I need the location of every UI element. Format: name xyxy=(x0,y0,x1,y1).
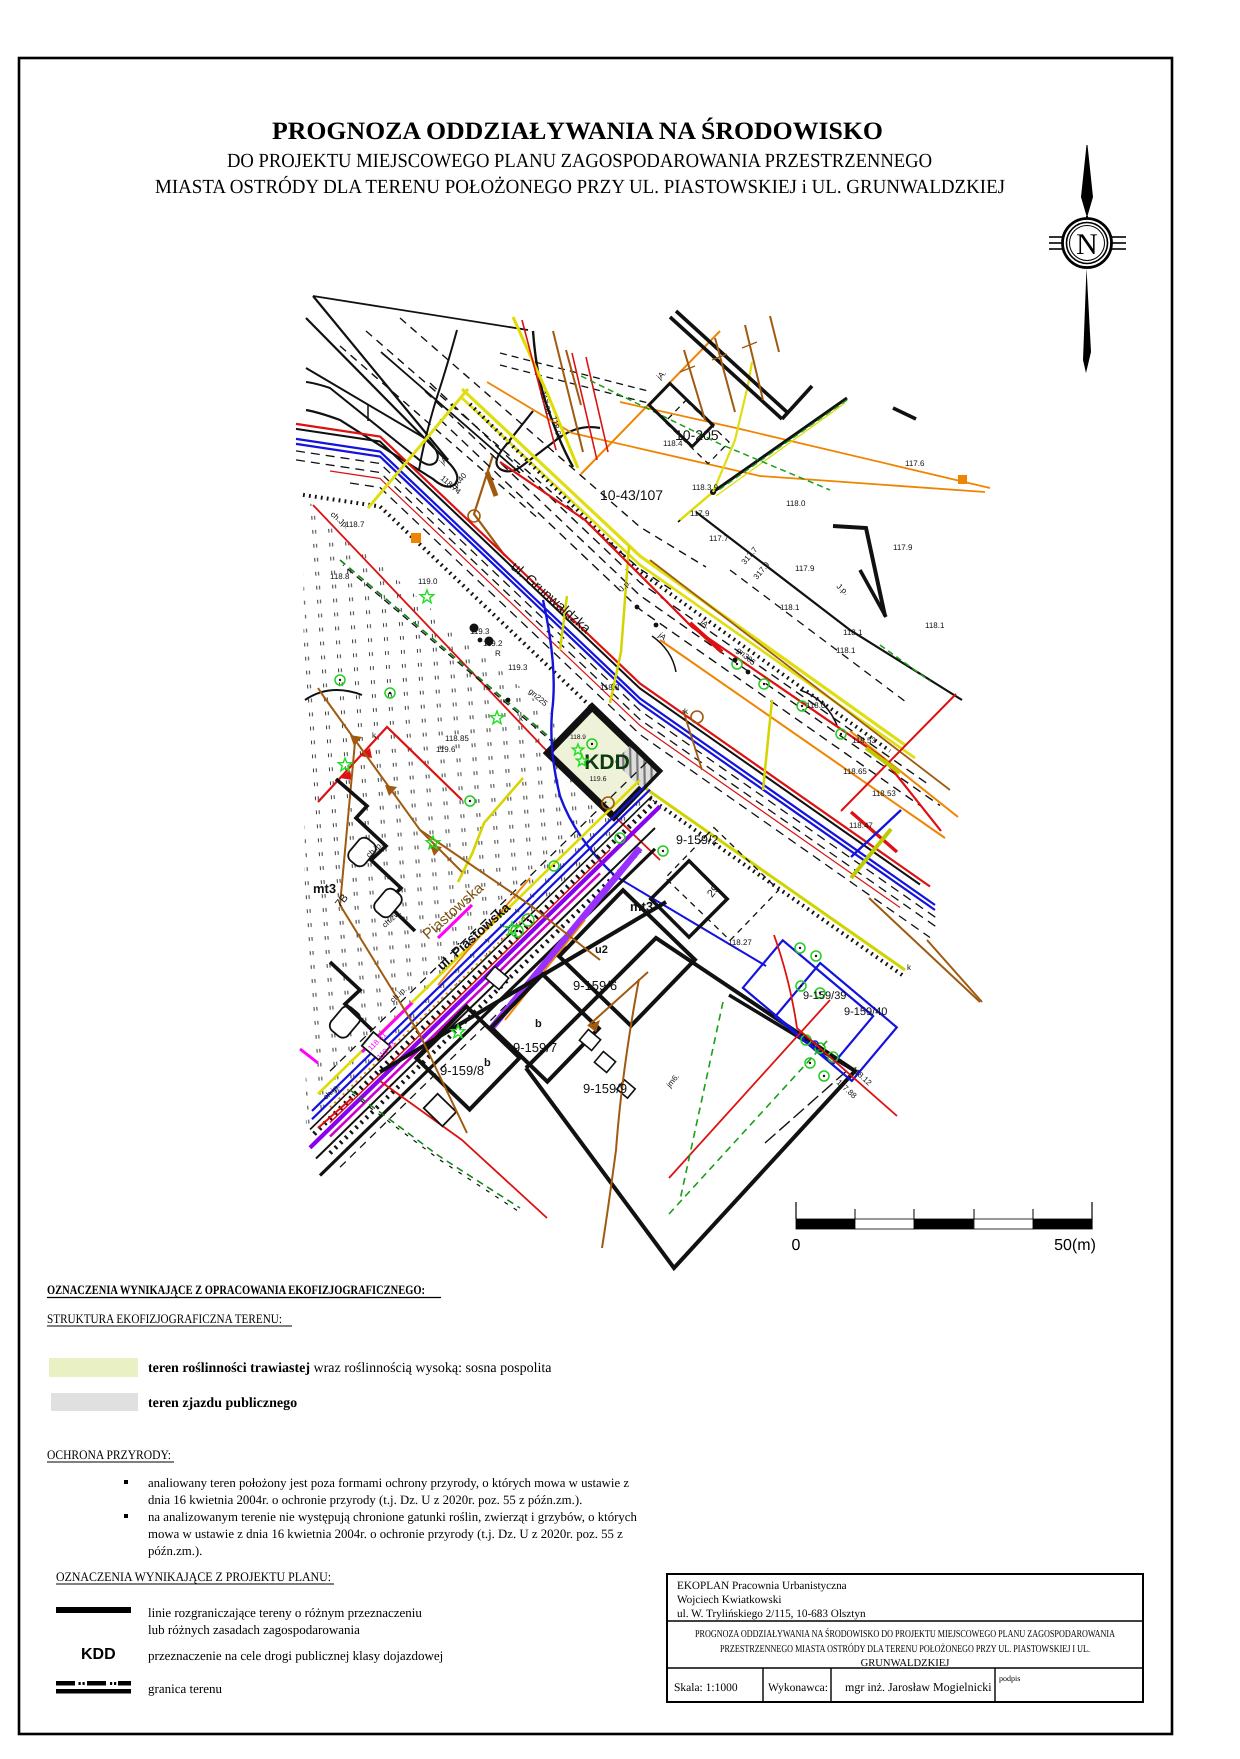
svg-text:ul. W. Trylińskiego 2/115, 10-: ul. W. Trylińskiego 2/115, 10-683 Olszty… xyxy=(677,1608,866,1620)
svg-text:117.9: 117.9 xyxy=(690,509,710,518)
svg-text:Wykonawca:: Wykonawca: xyxy=(768,1682,828,1694)
svg-text:119.6: 119.6 xyxy=(590,776,607,783)
svg-text:117.6: 117.6 xyxy=(905,459,925,468)
svg-text:9-159/39: 9-159/39 xyxy=(803,990,846,1002)
svg-text:118.85: 118.85 xyxy=(445,734,469,743)
svg-text:PROGNOZA ODDZIAŁYWANIA NA ŚROD: PROGNOZA ODDZIAŁYWANIA NA ŚRODOWISKO xyxy=(272,117,883,145)
svg-text:b: b xyxy=(535,1018,542,1030)
svg-text:9-159/6: 9-159/6 xyxy=(573,978,617,993)
svg-text:9-159/9: 9-159/9 xyxy=(583,1081,627,1096)
svg-text:na analizowanym terenie nie wy: na analizowanym terenie nie występują ch… xyxy=(148,1510,637,1524)
svg-text:118.4: 118.4 xyxy=(663,439,683,448)
svg-text:118.0: 118.0 xyxy=(806,701,826,710)
svg-text:117.9: 117.9 xyxy=(795,564,815,573)
svg-text:118.1: 118.1 xyxy=(780,603,800,612)
svg-text:GRUNWALDZKIEJ: GRUNWALDZKIEJ xyxy=(861,1658,950,1669)
svg-text:118.3 9: 118.3 9 xyxy=(692,483,719,492)
svg-text:KDD: KDD xyxy=(81,1646,116,1663)
svg-text:PRZESTRZENNEGO MIASTA OSTRÓDY: PRZESTRZENNEGO MIASTA OSTRÓDY DLA TERENU… xyxy=(720,1642,1090,1655)
svg-text:granica terenu: granica terenu xyxy=(148,1681,222,1696)
svg-text:OZNACZENIA WYNIKAJĄCE Z PROJEK: OZNACZENIA WYNIKAJĄCE Z PROJEKTU PLANU: xyxy=(56,1569,331,1584)
svg-text:118.8: 118.8 xyxy=(330,572,350,581)
svg-text:KDD: KDD xyxy=(584,751,630,774)
svg-text:118.9: 118.9 xyxy=(570,734,586,741)
svg-text:118.53: 118.53 xyxy=(872,789,896,798)
svg-text:118.47: 118.47 xyxy=(849,821,873,830)
svg-text:118.1: 118.1 xyxy=(925,621,945,630)
svg-text:mt3: mt3 xyxy=(313,881,336,896)
svg-text:119.0: 119.0 xyxy=(418,577,438,586)
svg-text:Skala: 1:1000: Skala: 1:1000 xyxy=(674,1682,738,1694)
svg-text:STRUKTURA EKOFIZJOGRAFICZNA TE: STRUKTURA EKOFIZJOGRAFICZNA TERENU: xyxy=(47,1311,282,1326)
svg-text:118.8: 118.8 xyxy=(600,683,620,692)
svg-text:u2: u2 xyxy=(595,944,608,956)
svg-text:PROGNOZA ODDZIAŁYWANIA NA ŚROD: PROGNOZA ODDZIAŁYWANIA NA ŚRODOWISKO DO … xyxy=(695,1627,1115,1640)
svg-text:9-159/2: 9-159/2 xyxy=(676,833,718,847)
svg-text:9-159/40: 9-159/40 xyxy=(844,1006,887,1018)
svg-text:118.1: 118.1 xyxy=(843,628,863,637)
svg-text:118.53: 118.53 xyxy=(852,736,876,745)
svg-text:EKOPLAN Pracownia Urbanistyczn: EKOPLAN Pracownia Urbanistyczna xyxy=(677,1580,847,1592)
svg-text:mgr inż. Jarosław Mogielnicki: mgr inż. Jarosław Mogielnicki xyxy=(845,1680,992,1694)
svg-text:50(m): 50(m) xyxy=(1054,1237,1096,1254)
svg-text:119.2: 119.2 xyxy=(483,639,503,648)
svg-text:118.27: 118.27 xyxy=(728,938,752,947)
svg-text:N: N xyxy=(1076,228,1098,261)
svg-text:przeznaczenie na cele drogi pu: przeznaczenie na cele drogi publicznej k… xyxy=(148,1648,443,1663)
svg-text:mt3: mt3 xyxy=(630,899,653,914)
svg-text:9-159/8: 9-159/8 xyxy=(440,1063,484,1078)
svg-text:118.0: 118.0 xyxy=(786,499,806,508)
svg-text:b: b xyxy=(484,1057,491,1069)
svg-text:118.65: 118.65 xyxy=(843,767,867,776)
svg-text:119.6: 119.6 xyxy=(436,745,456,754)
svg-text:Wojciech Kwiatkowski: Wojciech Kwiatkowski xyxy=(677,1594,781,1606)
svg-text:mowa w ustawie z dnia 16 kwiet: mowa w ustawie z dnia 16 kwietnia 2004r.… xyxy=(148,1527,623,1541)
svg-text:podpis: podpis xyxy=(999,1674,1020,1683)
svg-text:118.1: 118.1 xyxy=(836,646,856,655)
svg-text:dnia 16 kwietnia 2004r. o ochr: dnia 16 kwietnia 2004r. o ochronie przyr… xyxy=(148,1493,582,1507)
svg-text:teren roślinności trawiastej: teren roślinności trawiastej wraz roślin… xyxy=(148,1361,552,1376)
svg-text:linie rozgraniczające tereny o: linie rozgraniczające tereny o różnym pr… xyxy=(148,1605,422,1620)
svg-text:10-43/107: 10-43/107 xyxy=(600,487,663,503)
svg-text:MIASTA OSTRÓDY DLA TERENU POŁO: MIASTA OSTRÓDY DLA TERENU POŁOŻONEGO PRZ… xyxy=(155,175,1005,198)
svg-text:0: 0 xyxy=(792,1237,801,1254)
svg-text:analiowany teren położony jest: analiowany teren położony jest poza form… xyxy=(148,1476,629,1490)
svg-text:119.3: 119.3 xyxy=(508,663,528,672)
svg-text:OCHRONA PRZYRODY:: OCHRONA PRZYRODY: xyxy=(47,1447,171,1462)
svg-text:9-159/7: 9-159/7 xyxy=(513,1040,557,1055)
svg-text:117.7: 117.7 xyxy=(709,534,729,543)
svg-text:OZNACZENIA WYNIKAJĄCE Z OPRACO: OZNACZENIA WYNIKAJĄCE Z OPRACOWANIA EKOF… xyxy=(47,1283,425,1297)
svg-text:R: R xyxy=(495,649,501,658)
svg-text:DO PROJEKTU MIEJSCOWEGO PLANU: DO PROJEKTU MIEJSCOWEGO PLANU ZAGOSPODAR… xyxy=(227,150,932,172)
svg-text:117.9: 117.9 xyxy=(893,543,913,552)
svg-text:lub różnych zasadach zagospoda: lub różnych zasadach zagospodarowania xyxy=(148,1622,360,1637)
svg-text:teren zjazdu publicznego: teren zjazdu publicznego xyxy=(148,1396,297,1411)
svg-text:119.3: 119.3 xyxy=(470,627,490,636)
svg-text:późn.zm.).: późn.zm.). xyxy=(148,1544,202,1558)
